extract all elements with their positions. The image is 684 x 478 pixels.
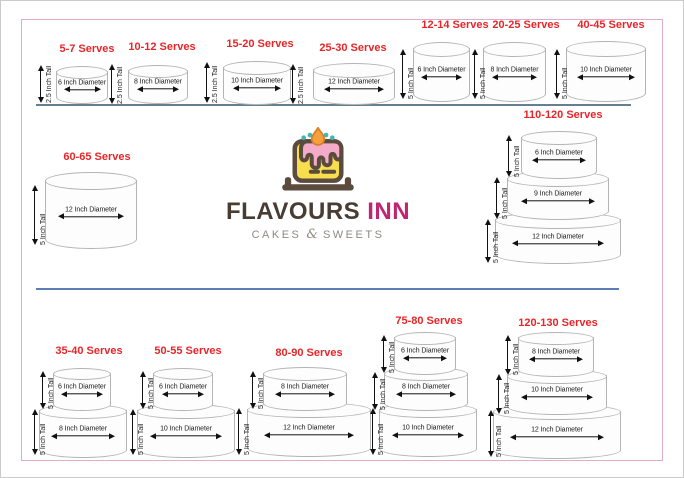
height-label: 5 Inch Tall [40, 409, 48, 455]
serves-label: 75-80 Serves [367, 315, 491, 327]
diameter-annotation: 12 Inch Diameter [314, 78, 394, 93]
serves-label: 50-55 Serves [129, 345, 247, 357]
horizontal-arrow-icon [396, 390, 457, 398]
cake-tier: 8 Inch Diameter [518, 337, 594, 377]
diameter-annotation: 12 Inch Diameter [46, 206, 136, 221]
cake-tier: 6 Inch Diameter [521, 137, 597, 179]
vertical-arrow-icon [399, 49, 407, 99]
vertical-arrow-icon [249, 371, 257, 409]
horizontal-arrow-icon [324, 85, 383, 93]
vertical-arrow-icon [471, 49, 479, 99]
horizontal-arrow-icon [150, 432, 221, 440]
diameter-label: 10 Inch Diameter [160, 425, 212, 432]
diameter-label: 8 Inch Diameter [59, 425, 107, 432]
horizontal-arrow-icon [233, 84, 282, 92]
diameter-label: 6 Inch Diameter [535, 149, 583, 156]
tier-height-annotation: 5 Inch Tall [493, 177, 510, 219]
vertical-arrow-icon [129, 409, 137, 455]
tier-height-annotation: 2.5 Inch Tall [203, 62, 220, 103]
cake-tier: 10 Inch Diameter [137, 410, 235, 458]
cake-group-40-45-serves: 40-45 Serves 10 Inch Diameter 5 Inch Tal… [553, 19, 669, 103]
diameter-annotation: 8 Inch Diameter [264, 383, 346, 398]
diameter-annotation: 6 Inch Diameter [54, 383, 110, 398]
diameter-annotation: 6 Inch Diameter [414, 66, 469, 81]
serves-label: 60-65 Serves [31, 151, 163, 163]
cake-group-75-80-serves: 75-80 Serves 10 Inch Diameter 8 Inch Dia… [367, 315, 491, 459]
serves-label: 120-130 Serves [487, 317, 629, 329]
tier-height-annotation: 5 Inch Tall [484, 219, 501, 263]
horizontal-arrow-icon [521, 393, 594, 401]
cake-logo-icon [273, 127, 363, 195]
vertical-arrow-icon [553, 49, 561, 99]
vertical-arrow-icon [31, 185, 39, 245]
horizontal-arrow-icon [512, 240, 604, 248]
horizontal-arrow-icon [264, 431, 354, 439]
cake-group-60-65-serves: 60-65 Serves 12 Inch Diameter 5 Inch Tal… [31, 151, 163, 249]
height-label: 5 Inch Tall [48, 371, 56, 409]
cake-tier: 12 Inch Diameter [247, 409, 371, 457]
horizontal-arrow-icon [51, 432, 115, 440]
height-label: 2.5 Inch Tall [212, 62, 220, 103]
cake-tier: 10 Inch Diameter [566, 48, 646, 102]
brand-logo: FLAVOURSINN CAKES&SWEETS [223, 127, 413, 249]
height-label: 5 Inch Tall [496, 410, 504, 457]
tier-height-annotation: 5 Inch Tall [504, 335, 521, 375]
diameter-annotation: 8 Inch Diameter [129, 78, 187, 93]
horizontal-arrow-icon [492, 73, 537, 81]
tier-height-annotation: 5 Inch Tall [380, 335, 397, 373]
diameter-label: 12 Inch Diameter [283, 424, 335, 431]
height-label: 5 Inch Tall [258, 371, 266, 409]
brand-name-inn: INN [367, 198, 410, 225]
height-label: 5 Inch Tall [389, 335, 397, 373]
horizontal-arrow-icon [275, 390, 336, 398]
tier-height-annotation: 5 Inch Tall [371, 372, 388, 410]
cake-tier: 6 Inch Diameter [153, 373, 213, 411]
diameter-label: 12 Inch Diameter [531, 426, 583, 433]
cake-serving-chart-poster: 5-7 Serves 6 Inch Diameter 2.5 Inch Tall… [0, 0, 684, 478]
tier-height-annotation: 2.5 Inch Tall [37, 65, 54, 103]
height-label: 2.5 Inch Tall [117, 64, 125, 104]
height-label: 5 Inch Tall [138, 409, 146, 455]
cake-tier: 6 Inch Diameter [413, 48, 470, 102]
height-label: 5 Inch Tall [502, 177, 510, 219]
diameter-label: 8 Inch Diameter [281, 383, 329, 390]
vertical-arrow-icon [37, 65, 45, 103]
diameter-label: 8 Inch Diameter [402, 383, 450, 390]
diameter-label: 6 Inch Diameter [159, 383, 207, 390]
middle-divider-line [36, 288, 619, 290]
vertical-arrow-icon [108, 64, 116, 104]
cake-tier: 10 Inch Diameter [507, 375, 607, 415]
diameter-label: 6 Inch Diameter [418, 66, 466, 73]
vertical-arrow-icon [484, 219, 492, 263]
diameter-label: 9 Inch Diameter [534, 190, 582, 197]
tier-height-annotation: 5 Inch Tall [31, 409, 48, 455]
diameter-label: 10 Inch Diameter [231, 77, 283, 84]
cake-tier: 12 Inch Diameter [45, 180, 137, 249]
cake-tier: 10 Inch Diameter [379, 409, 477, 457]
horizontal-arrow-icon [403, 354, 447, 362]
cake-group-120-130-serves: 120-130 Serves 12 Inch Diameter 10 Inch … [487, 317, 629, 459]
diameter-annotation: 12 Inch Diameter [494, 426, 620, 441]
height-label: 5 Inch Tall [148, 371, 156, 409]
diameter-annotation: 9 Inch Diameter [508, 190, 608, 205]
vertical-arrow-icon [493, 177, 501, 219]
brand-name: FLAVOURSINN [223, 198, 413, 226]
diameter-annotation: 6 Inch Diameter [57, 79, 107, 94]
cake-group-50-55-serves: 50-55 Serves 10 Inch Diameter 6 Inch Dia… [129, 345, 247, 457]
diameter-annotation: 6 Inch Diameter [154, 383, 212, 398]
tier-height-annotation: 5 Inch Tall [249, 371, 266, 409]
tier-height-annotation: 5 Inch Tall [139, 371, 156, 409]
horizontal-arrow-icon [162, 390, 205, 398]
cake-tier: 12 Inch Diameter [313, 69, 395, 105]
diameter-annotation: 10 Inch Diameter [380, 424, 476, 439]
cake-tier: 6 Inch Diameter [394, 337, 456, 375]
horizontal-arrow-icon [521, 197, 595, 205]
diameter-label: 6 Inch Diameter [58, 383, 106, 390]
diameter-label: 6 Inch Diameter [401, 347, 449, 354]
tagline-cakes: CAKES [252, 229, 302, 241]
tagline-ampersand: & [306, 227, 318, 242]
diameter-annotation: 10 Inch Diameter [567, 66, 645, 81]
tier-height-annotation: 5 Inch Tall [487, 410, 504, 457]
diameter-annotation: 12 Inch Diameter [248, 424, 370, 439]
height-label: 5 Inch Tall [513, 335, 521, 375]
horizontal-arrow-icon [137, 85, 180, 93]
vertical-arrow-icon [203, 62, 211, 103]
vertical-arrow-icon [235, 408, 243, 455]
vertical-arrow-icon [380, 335, 388, 373]
diameter-annotation: 8 Inch Diameter [519, 348, 593, 363]
diameter-annotation: 8 Inch Diameter [484, 66, 545, 81]
vertical-arrow-icon [31, 409, 39, 455]
diameter-label: 6 Inch Diameter [58, 79, 106, 86]
tier-height-annotation: 5 Inch Tall [369, 408, 386, 455]
diameter-label: 10 Inch Diameter [531, 386, 583, 393]
cake-tier: 8 Inch Diameter [263, 373, 347, 411]
diameter-label: 10 Inch Diameter [580, 66, 632, 73]
height-label: 2.5 Inch Tall [298, 64, 306, 104]
vertical-arrow-icon [505, 135, 513, 177]
diameter-annotation: 6 Inch Diameter [395, 347, 455, 362]
cake-tier: 12 Inch Diameter [493, 411, 621, 459]
diameter-annotation: 10 Inch Diameter [138, 425, 234, 440]
height-label: 5 Inch Tall [504, 374, 512, 414]
horizontal-arrow-icon [510, 433, 603, 441]
tier-height-annotation: 2.5 Inch Tall [289, 64, 306, 104]
height-label: 5 Inch Tall [493, 219, 501, 263]
horizontal-arrow-icon [58, 213, 125, 221]
tier-height-annotation: 5 Inch Tall [39, 371, 56, 409]
cake-tier: 8 Inch Diameter [39, 410, 127, 458]
cake-group-110-120-serves: 110-120 Serves 12 Inch Diameter 9 Inch D… [483, 109, 643, 263]
diameter-label: 12 Inch Diameter [65, 206, 117, 213]
serves-label: 40-45 Serves [553, 19, 669, 31]
tagline-sweets: SWEETS [323, 229, 384, 241]
brand-name-flavours: FLAVOURS [226, 198, 360, 225]
diameter-annotation: 6 Inch Diameter [522, 149, 596, 164]
cake-tier: 8 Inch Diameter [483, 48, 546, 102]
diameter-label: 8 Inch Diameter [134, 78, 182, 85]
height-label: 5 Inch Tall [378, 408, 386, 455]
cake-tier: 10 Inch Diameter [223, 67, 291, 105]
tier-height-annotation: 5 Inch Tall [495, 374, 512, 414]
height-label: 5 Inch Tall [244, 408, 252, 455]
diameter-annotation: 8 Inch Diameter [385, 383, 467, 398]
diameter-annotation: 12 Inch Diameter [496, 233, 620, 248]
cake-tier: 12 Inch Diameter [495, 219, 621, 264]
vertical-arrow-icon [495, 374, 503, 414]
height-label: 2.5 Inch Tall [46, 65, 54, 103]
tier-height-annotation: 2.5 Inch Tall [108, 64, 125, 104]
tier-height-annotation: 5 Inch Tall [235, 408, 252, 455]
vertical-arrow-icon [289, 64, 297, 104]
horizontal-arrow-icon [532, 156, 587, 164]
tier-height-annotation: 5 Inch Tall [129, 409, 146, 455]
brand-tagline: CAKES&SWEETS [223, 227, 413, 242]
cake-tier: 6 Inch Diameter [53, 373, 111, 411]
vertical-arrow-icon [369, 408, 377, 455]
vertical-arrow-icon [504, 335, 512, 375]
serves-label: 80-90 Serves [235, 347, 383, 359]
diameter-label: 8 Inch Diameter [491, 66, 539, 73]
vertical-arrow-icon [139, 371, 147, 409]
diameter-label: 8 Inch Diameter [532, 348, 580, 355]
cake-tier: 8 Inch Diameter [128, 70, 188, 104]
diameter-annotation: 10 Inch Diameter [224, 77, 290, 92]
diameter-annotation: 8 Inch Diameter [40, 425, 126, 440]
height-label: 5 Inch Tall [380, 372, 388, 410]
horizontal-arrow-icon [529, 355, 584, 363]
horizontal-arrow-icon [61, 390, 102, 398]
cake-group-80-90-serves: 80-90 Serves 12 Inch Diameter 8 Inch Dia… [235, 347, 383, 457]
vertical-arrow-icon [39, 371, 47, 409]
cake-tier: 8 Inch Diameter [384, 373, 468, 411]
height-label: 5 Inch Tall [514, 135, 522, 177]
vertical-arrow-icon [487, 410, 495, 457]
cake-tier: 9 Inch Diameter [507, 178, 609, 220]
diameter-label: 12 Inch Diameter [532, 233, 584, 240]
cake-tier: 6 Inch Diameter [56, 71, 108, 104]
horizontal-arrow-icon [577, 73, 635, 81]
horizontal-arrow-icon [421, 73, 462, 81]
tier-height-annotation: 5 Inch Tall [505, 135, 522, 177]
horizontal-arrow-icon [392, 431, 463, 439]
horizontal-arrow-icon [64, 86, 101, 94]
serves-label: 110-120 Serves [483, 109, 643, 121]
diameter-annotation: 10 Inch Diameter [508, 386, 606, 401]
vertical-arrow-icon [371, 372, 379, 410]
diameter-label: 10 Inch Diameter [402, 424, 454, 431]
diameter-label: 12 Inch Diameter [328, 78, 380, 85]
